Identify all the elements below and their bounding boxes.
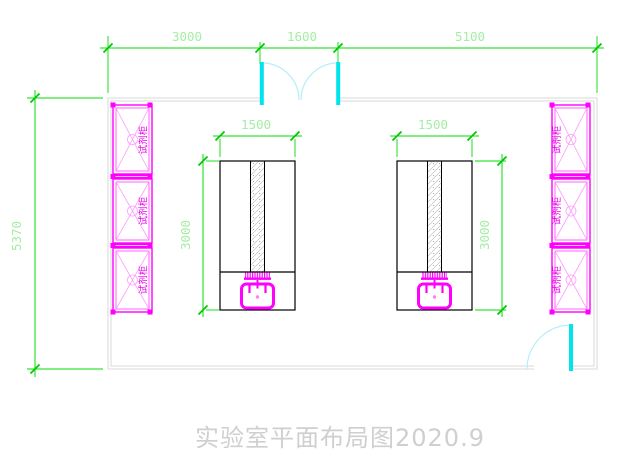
door-leaf bbox=[569, 324, 573, 371]
door-leaf bbox=[336, 62, 340, 105]
room-height-dimension: 5370 bbox=[9, 90, 103, 377]
right-bench-depth-dimension: 3000 bbox=[475, 154, 507, 317]
door-swing-arc bbox=[301, 63, 338, 100]
joint-block bbox=[550, 310, 555, 315]
sink-grille bbox=[422, 273, 447, 279]
door-swing-arc bbox=[262, 63, 299, 100]
joint-block bbox=[148, 103, 153, 108]
joint-block bbox=[586, 174, 591, 179]
right-bench-width-dimension: 1500 bbox=[390, 117, 479, 157]
joint-block bbox=[586, 103, 591, 108]
door-leaf bbox=[260, 62, 264, 105]
drain-dot bbox=[256, 295, 259, 298]
dim-bench-width-label: 1500 bbox=[241, 117, 271, 132]
cabinet-label: 试剂柜 bbox=[138, 196, 150, 225]
cabinet-cell: 试剂柜 bbox=[551, 248, 590, 312]
joint-block bbox=[550, 174, 555, 179]
joint-block bbox=[111, 243, 116, 248]
bench-hatch-strip bbox=[251, 162, 265, 273]
cabinet-cell: 试剂柜 bbox=[113, 179, 152, 243]
joint-block bbox=[586, 310, 591, 315]
cabinet-label: 试剂柜 bbox=[138, 265, 150, 294]
drain-dot bbox=[433, 295, 436, 298]
dim-bench-depth-label: 3000 bbox=[178, 220, 193, 250]
joint-block bbox=[111, 310, 116, 315]
door-swing-arc bbox=[527, 325, 571, 369]
joint-block bbox=[148, 174, 153, 179]
joint-block bbox=[586, 243, 591, 248]
dim-bench-width-label: 1500 bbox=[418, 117, 448, 132]
left-bench-width-dimension: 1500 bbox=[213, 117, 302, 157]
bench-hatch-strip bbox=[428, 162, 442, 273]
dim-top-segment-1-label: 3000 bbox=[172, 29, 202, 44]
dim-top-segment-2-label: 1600 bbox=[287, 29, 317, 44]
sink-symbol bbox=[242, 273, 274, 309]
cabinet-label: 试剂柜 bbox=[551, 265, 563, 294]
floorplan-canvas: 3000 1600 5100 5370 试剂柜 试剂柜 bbox=[0, 0, 619, 469]
cabinet-cell: 试剂柜 bbox=[113, 105, 152, 174]
joint-block bbox=[550, 103, 555, 108]
right-cabinet-column: 试剂柜 试剂柜 试剂柜 bbox=[550, 103, 591, 315]
right-bench bbox=[397, 161, 472, 310]
dim-bench-depth-label: 3000 bbox=[477, 220, 492, 250]
joint-block bbox=[550, 243, 555, 248]
joint-block bbox=[111, 174, 116, 179]
left-cabinet-column: 试剂柜 试剂柜 试剂柜 bbox=[111, 103, 153, 315]
left-bench-depth-dimension: 3000 bbox=[178, 154, 219, 317]
dim-room-height-label: 5370 bbox=[9, 221, 24, 251]
top-dimension: 3000 1600 5100 bbox=[100, 29, 604, 93]
sink-grille bbox=[245, 273, 270, 279]
sink-symbol bbox=[419, 273, 451, 309]
cabinet-cell: 试剂柜 bbox=[551, 105, 590, 174]
cabinet-label: 试剂柜 bbox=[551, 125, 563, 154]
left-bench bbox=[220, 161, 295, 310]
cabinet-cell: 试剂柜 bbox=[113, 248, 152, 312]
joint-block bbox=[111, 103, 116, 108]
cabinet-label: 试剂柜 bbox=[551, 196, 563, 225]
drawing-title: 实验室平面布局图2020.9 bbox=[195, 424, 485, 452]
cabinet-cell: 试剂柜 bbox=[551, 179, 590, 243]
sink-grille-bar bbox=[421, 278, 448, 280]
joint-block bbox=[148, 243, 153, 248]
door-opening-bottom-right bbox=[534, 363, 571, 372]
dim-top-segment-3-label: 5100 bbox=[455, 29, 485, 44]
door-opening-top bbox=[261, 95, 339, 104]
cabinet-label: 试剂柜 bbox=[138, 125, 150, 154]
sink-grille-bar bbox=[244, 278, 271, 280]
joint-block bbox=[148, 310, 153, 315]
